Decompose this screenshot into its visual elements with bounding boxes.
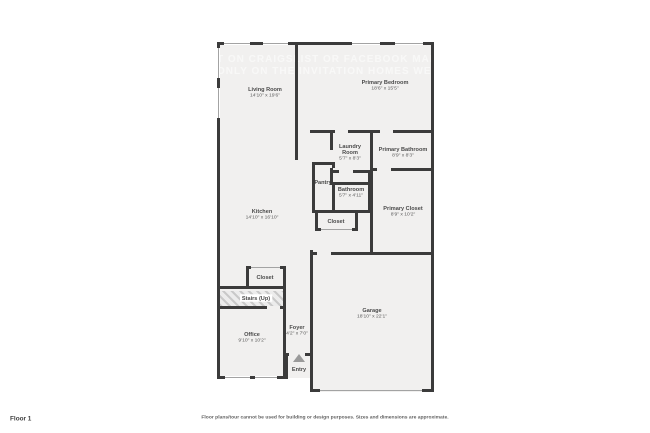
room-label-laundry-room: Laundry Room 5'7" x 8'3" [336,143,365,161]
room-dims: 8'9" x 8'3" [379,152,428,158]
room-dims: 9'10" x 10'2" [238,337,265,343]
wall-segment [331,252,434,255]
room-name: Closet [256,274,273,280]
room-label-office: Office 9'10" x 10'2" [238,331,265,343]
wall-segment [431,42,434,392]
room-dims: 14'10" x 19'6" [248,92,282,98]
room-label-stairs: Stairs (Up) [240,294,272,301]
wall-segment [368,170,371,212]
wall-segment [330,130,333,150]
room-dims: 18'6" x 15'5" [362,85,409,91]
floorplan-page: T ON CRAIGSLIST OR FACEBOOK MARK ONLY ON… [0,0,650,433]
room-name: Entry [292,366,306,372]
wall-segment [372,130,380,133]
wall-segment [310,389,320,392]
room-label-garage: Garage 18'10" x 22'1" [357,307,387,319]
wall-segment [310,250,313,392]
wall-segment [305,353,310,356]
window-line [225,377,250,378]
room-label-kitchen: Kitchen 14'10" x 16'10" [246,208,279,220]
window-line [352,43,380,44]
room-name: Stairs (Up) [240,294,272,301]
door-line [320,390,422,391]
wall-segment [246,266,249,288]
wall-segment [217,306,267,309]
wall-segment [312,210,371,213]
room-dims: 4'2" x 7'0" [286,330,308,336]
window-line [395,43,423,44]
wall-segment [217,286,285,289]
wall-segment [393,130,434,133]
room-label-closet-hall: Closet [327,218,344,224]
room-dims: 18'10" x 22'1" [357,313,387,319]
window-line [224,43,250,44]
wall-segment [283,306,286,378]
wall-segment [422,389,434,392]
window-line [218,48,219,78]
floor-label: Floor 1 [10,415,31,422]
room-dims: 8'9" x 10'2" [383,211,422,217]
wall-segment [332,170,339,173]
wall-segment [391,168,434,171]
room-label-bathroom: Bathroom 5'7" x 4'11" [338,186,364,198]
room-label-living-room: Living Room 14'10" x 19'6" [248,86,282,98]
room-dims: 5'7" x 8'3" [336,155,365,161]
door-line [321,229,352,230]
wall-segment [310,252,317,255]
window-line [255,377,277,378]
wall-segment [330,182,373,185]
room-name: Closet [327,218,344,224]
room-label-foyer: Foyer 4'2" x 7'0" [286,324,308,336]
room-dims: 5'7" x 4'11" [338,192,364,198]
room-label-primary-closet: Primary Closet 8'9" x 10'2" [383,205,422,217]
wall-segment [312,162,315,212]
disclaimer-text: Floor plans/tour cannot be used for buil… [124,414,527,420]
floorplan: T ON CRAIGSLIST OR FACEBOOK MARK ONLY ON… [217,42,434,392]
wall-segment [295,42,298,160]
window-line [263,43,288,44]
wall-segment [285,353,289,356]
room-label-primary-bathroom: Primary Bathroom 8'9" x 8'3" [379,146,428,158]
entry-arrow-icon [293,354,305,362]
door-line [251,267,280,268]
wall-segment [348,130,372,133]
room-label-entry: Entry [292,366,306,372]
room-label-primary-bedroom: Primary Bedroom 18'6" x 15'5" [362,79,409,91]
room-dims: 14'10" x 16'10" [246,214,279,220]
wall-segment [332,184,335,212]
room-label-closet-stairs: Closet [256,274,273,280]
window-line [218,88,219,118]
wall-segment [352,228,358,231]
room-name: Laundry Room [336,143,365,155]
wall-segment [332,162,335,168]
